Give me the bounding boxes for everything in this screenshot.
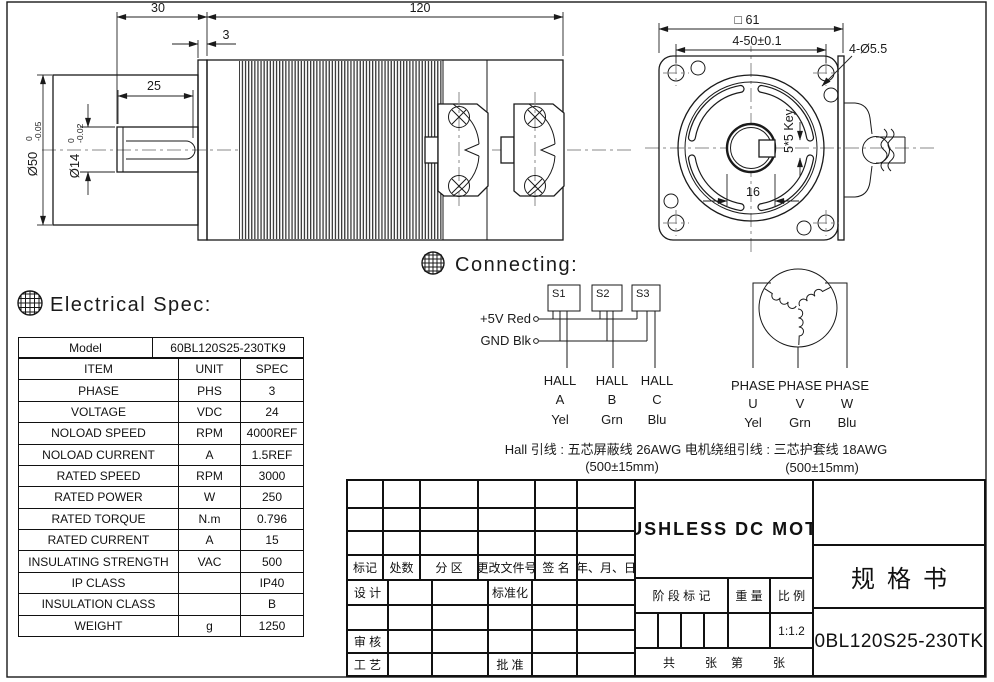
spec-model-table: Model 60BL120S25-230TK9 (18, 337, 304, 358)
hall-a-letter: A (556, 392, 565, 407)
model-label: Model (19, 338, 153, 358)
hall-c-letter: C (652, 392, 661, 407)
spec-item: RATED POWER (19, 487, 179, 508)
winding-circle (759, 269, 837, 347)
spec-value: B (241, 594, 304, 615)
phase-w-color: Blu (838, 415, 857, 430)
phase-labels: PHASE U Yel PHASE V Grn PHASE W Blu (731, 378, 869, 430)
spec-value: 3000 (241, 465, 304, 486)
rear-profile-view (844, 103, 905, 197)
table-row: NOLOAD CURRENTA1.5REF (19, 444, 304, 465)
dim-dia14-main: Ø14 (67, 154, 82, 179)
sensor-s2-label: S2 (596, 288, 609, 300)
hatched-globe-icon (422, 252, 444, 274)
spec-col-spec: SPEC (241, 359, 304, 380)
table-row: WEIGHTg1250 (19, 615, 304, 637)
hall-a-title: HALL (544, 373, 577, 388)
phase-w-title: PHASE (825, 378, 869, 393)
spec-item: RATED CURRENT (19, 530, 179, 551)
hall-sensor-diagram: S1 S2 S3 +5V Red GND Blk HALL A Yel HALL… (480, 285, 681, 474)
spec-item: IP CLASS (19, 572, 179, 593)
spec-item: VOLTAGE (19, 401, 179, 422)
cable-gland-tab (425, 137, 438, 163)
star-winding (762, 283, 831, 345)
table-row: IP CLASSIP40 (19, 572, 304, 593)
table-row: RATED SPEEDRPM3000 (19, 465, 304, 486)
table-row: RATED POWERW250 (19, 487, 304, 508)
spec-value: 1.5REF (241, 444, 304, 465)
cable-clamp-2 (501, 92, 564, 209)
table-row: RATED TORQUEN.m0.796 (19, 508, 304, 529)
hatched-globe-icon (18, 291, 42, 315)
spec-value: 4000REF (241, 423, 304, 444)
table-row: PHASEPHS3 (19, 380, 304, 401)
spec-table: ITEM UNIT SPEC PHASEPHS3 VOLTAGEVDC24 NO… (18, 358, 304, 637)
phase-v-color: Grn (789, 415, 811, 430)
spec-item: WEIGHT (19, 615, 179, 637)
hall-c-title: HALL (641, 373, 674, 388)
motor-side-view: 30 120 3 25 Ø50 0 -0.05 Ø14 (24, 1, 632, 240)
motor-front-view: □ 61 4-50±0.1 4-Ø5.5 16 5*5 Key (645, 13, 938, 256)
phase-u-letter: U (748, 396, 757, 411)
spec-unit: A (179, 444, 241, 465)
front-view-dimensions: □ 61 4-50±0.1 4-Ø5.5 16 5*5 Key (659, 13, 887, 206)
spec-unit: VDC (179, 401, 241, 422)
phase-v-letter: V (796, 396, 805, 411)
spec-item: RATED TORQUE (19, 508, 179, 529)
dim-4xd5.5: 4-Ø5.5 (849, 42, 887, 56)
table-row: INSULATING STRENGTHVAC500 (19, 551, 304, 572)
spec-value: 250 (241, 487, 304, 508)
spec-value: 1250 (241, 615, 304, 637)
gnd-label: GND Blk (480, 333, 531, 348)
dim-3: 3 (223, 28, 230, 42)
sensor-s1-label: S1 (552, 288, 565, 300)
phase-wire-length: (500±15mm) (785, 460, 859, 475)
spec-item: INSULATION CLASS (19, 594, 179, 615)
hall-c-color: Blu (648, 412, 667, 427)
hall-wiring (534, 311, 655, 368)
model-value: 60BL120S25-230TK9 (153, 338, 304, 358)
spec-value: 500 (241, 551, 304, 572)
hall-wire-length: (500±15mm) (585, 459, 659, 474)
spec-value: 3 (241, 380, 304, 401)
spec-unit (179, 572, 241, 593)
spec-unit: RPM (179, 465, 241, 486)
break-line (881, 129, 887, 171)
phase-u-color: Yel (744, 415, 762, 430)
hall-wire-note: Hall 引线 : 五芯屏蔽线 26AWG (505, 442, 681, 457)
spec-unit (179, 594, 241, 615)
spec-unit: RPM (179, 423, 241, 444)
dim-dia50-tol-bot: -0.05 (33, 121, 43, 141)
spec-unit: N.m (179, 508, 241, 529)
stator-fins (239, 61, 443, 239)
dim-key: 5*5 Key (782, 108, 796, 153)
spec-value: 0.796 (241, 508, 304, 529)
cable-gland-tab (501, 137, 514, 163)
spec-unit: VAC (179, 551, 241, 572)
phase-winding-diagram: PHASE U Yel PHASE V Grn PHASE W Blu 电机绕组… (685, 269, 887, 475)
dim-30: 30 (151, 1, 165, 15)
dim-dia14: Ø14 0 -0.02 (66, 123, 85, 178)
hall-b-title: HALL (596, 373, 629, 388)
phase-w-letter: W (841, 396, 854, 411)
hall-a-color: Yel (551, 412, 569, 427)
hall-b-letter: B (608, 392, 617, 407)
spec-col-unit: UNIT (179, 359, 241, 380)
table-row: NOLOAD SPEEDRPM4000REF (19, 423, 304, 444)
connecting-title: Connecting: (455, 254, 578, 276)
spec-col-item: ITEM (19, 359, 179, 380)
dim-bore-16: 16 (746, 185, 760, 199)
spec-value: IP40 (241, 572, 304, 593)
spec-unit: PHS (179, 380, 241, 401)
plus5v-label: +5V Red (480, 311, 531, 326)
phase-v-title: PHASE (778, 378, 822, 393)
table-row: RATED CURRENTA15 (19, 530, 304, 551)
table-row: INSULATION CLASSB (19, 594, 304, 615)
phase-u-title: PHASE (731, 378, 775, 393)
spec-value: 15 (241, 530, 304, 551)
spec-value: 24 (241, 401, 304, 422)
dim-120: 120 (410, 1, 431, 15)
dim-dia14-tol-bot: -0.02 (75, 123, 85, 143)
connecting-heading: Connecting: (422, 252, 578, 276)
dim-hole-spacing: 4-50±0.1 (732, 34, 781, 48)
spec-item: INSULATING STRENGTH (19, 551, 179, 572)
dim-25: 25 (147, 79, 161, 93)
key-slot (759, 140, 775, 157)
sensor-s3-label: S3 (636, 288, 649, 300)
dim-dia50-main: Ø50 (25, 152, 40, 177)
electrical-spec-heading: Electrical Spec: (18, 291, 212, 316)
spec-unit: W (179, 487, 241, 508)
hall-b-color: Grn (601, 412, 623, 427)
spec-item: RATED SPEED (19, 465, 179, 486)
table-row: VOLTAGEVDC24 (19, 401, 304, 422)
dim-square61: □ 61 (735, 13, 760, 27)
break-line (888, 129, 894, 171)
dim-dia50: Ø50 0 -0.05 (24, 121, 43, 176)
spec-unit: A (179, 530, 241, 551)
phase-wire-note: 电机绕组引线 : 三芯护套线 18AWG (685, 442, 887, 457)
spec-item: NOLOAD CURRENT (19, 444, 179, 465)
spec-unit: g (179, 615, 241, 637)
hall-output-labels: HALL A Yel HALL B Grn HALL C Blu (544, 373, 674, 427)
spec-item: PHASE (19, 380, 179, 401)
spec-item: NOLOAD SPEED (19, 423, 179, 444)
drawing-sheet: 30 120 3 25 Ø50 0 -0.05 Ø14 (0, 0, 994, 682)
title-block-outline (346, 479, 986, 677)
electrical-spec-title: Electrical Spec: (50, 294, 212, 316)
